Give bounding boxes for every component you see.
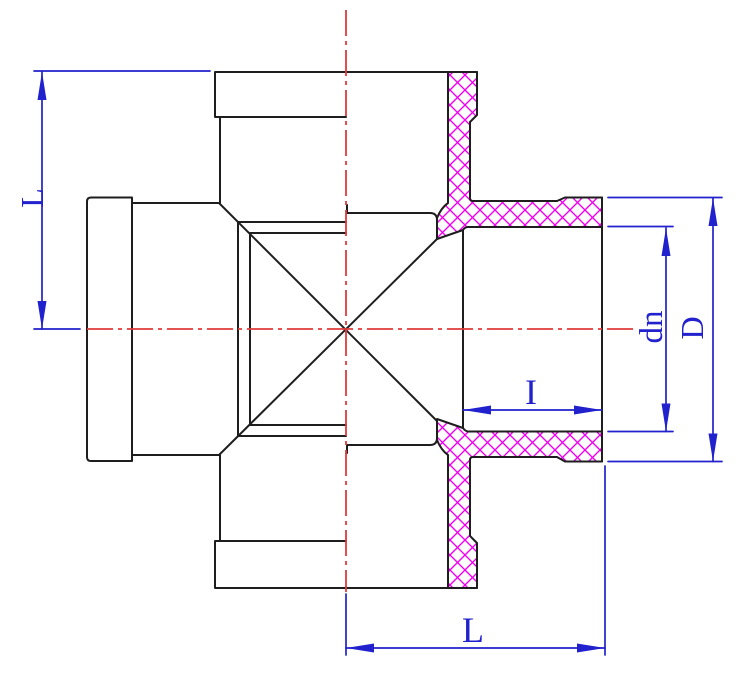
cross-fitting-section-drawing: L L I dn D (0, 0, 737, 677)
dim-label-L-left: L (14, 188, 50, 208)
bore-intersection-diagonal-a (219, 203, 437, 421)
arrow-D-up (709, 198, 718, 226)
arrow-I-left (463, 406, 491, 415)
arrow-I-right (574, 406, 602, 415)
arrow-dn-up (662, 228, 671, 256)
bore-intersection-diagonal-b (219, 239, 437, 455)
hatch-region-bottom-right-wall (437, 419, 602, 588)
bottom-socket-internal-stop-edge (347, 438, 437, 453)
dim-label-dn: dn (634, 311, 670, 344)
arrow-L-left-up (38, 72, 47, 100)
arrow-L-bottom-right (577, 644, 605, 653)
top-socket-internal-stop-edge (347, 205, 437, 220)
dim-label-D: D (674, 316, 710, 339)
dim-label-I: I (525, 372, 537, 412)
hatch-region-top-right-wall (437, 72, 602, 239)
centerline-layer (87, 10, 635, 592)
arrow-L-bottom-left (346, 644, 374, 653)
arrow-L-left-down (38, 301, 47, 329)
section-hatch-layer (437, 72, 602, 588)
technical-drawing-page: L L I dn D (0, 0, 737, 677)
outline-layer (87, 72, 602, 588)
arrow-D-down (709, 434, 718, 462)
dim-label-L-bottom: L (462, 610, 484, 650)
arrow-dn-down (662, 404, 671, 432)
